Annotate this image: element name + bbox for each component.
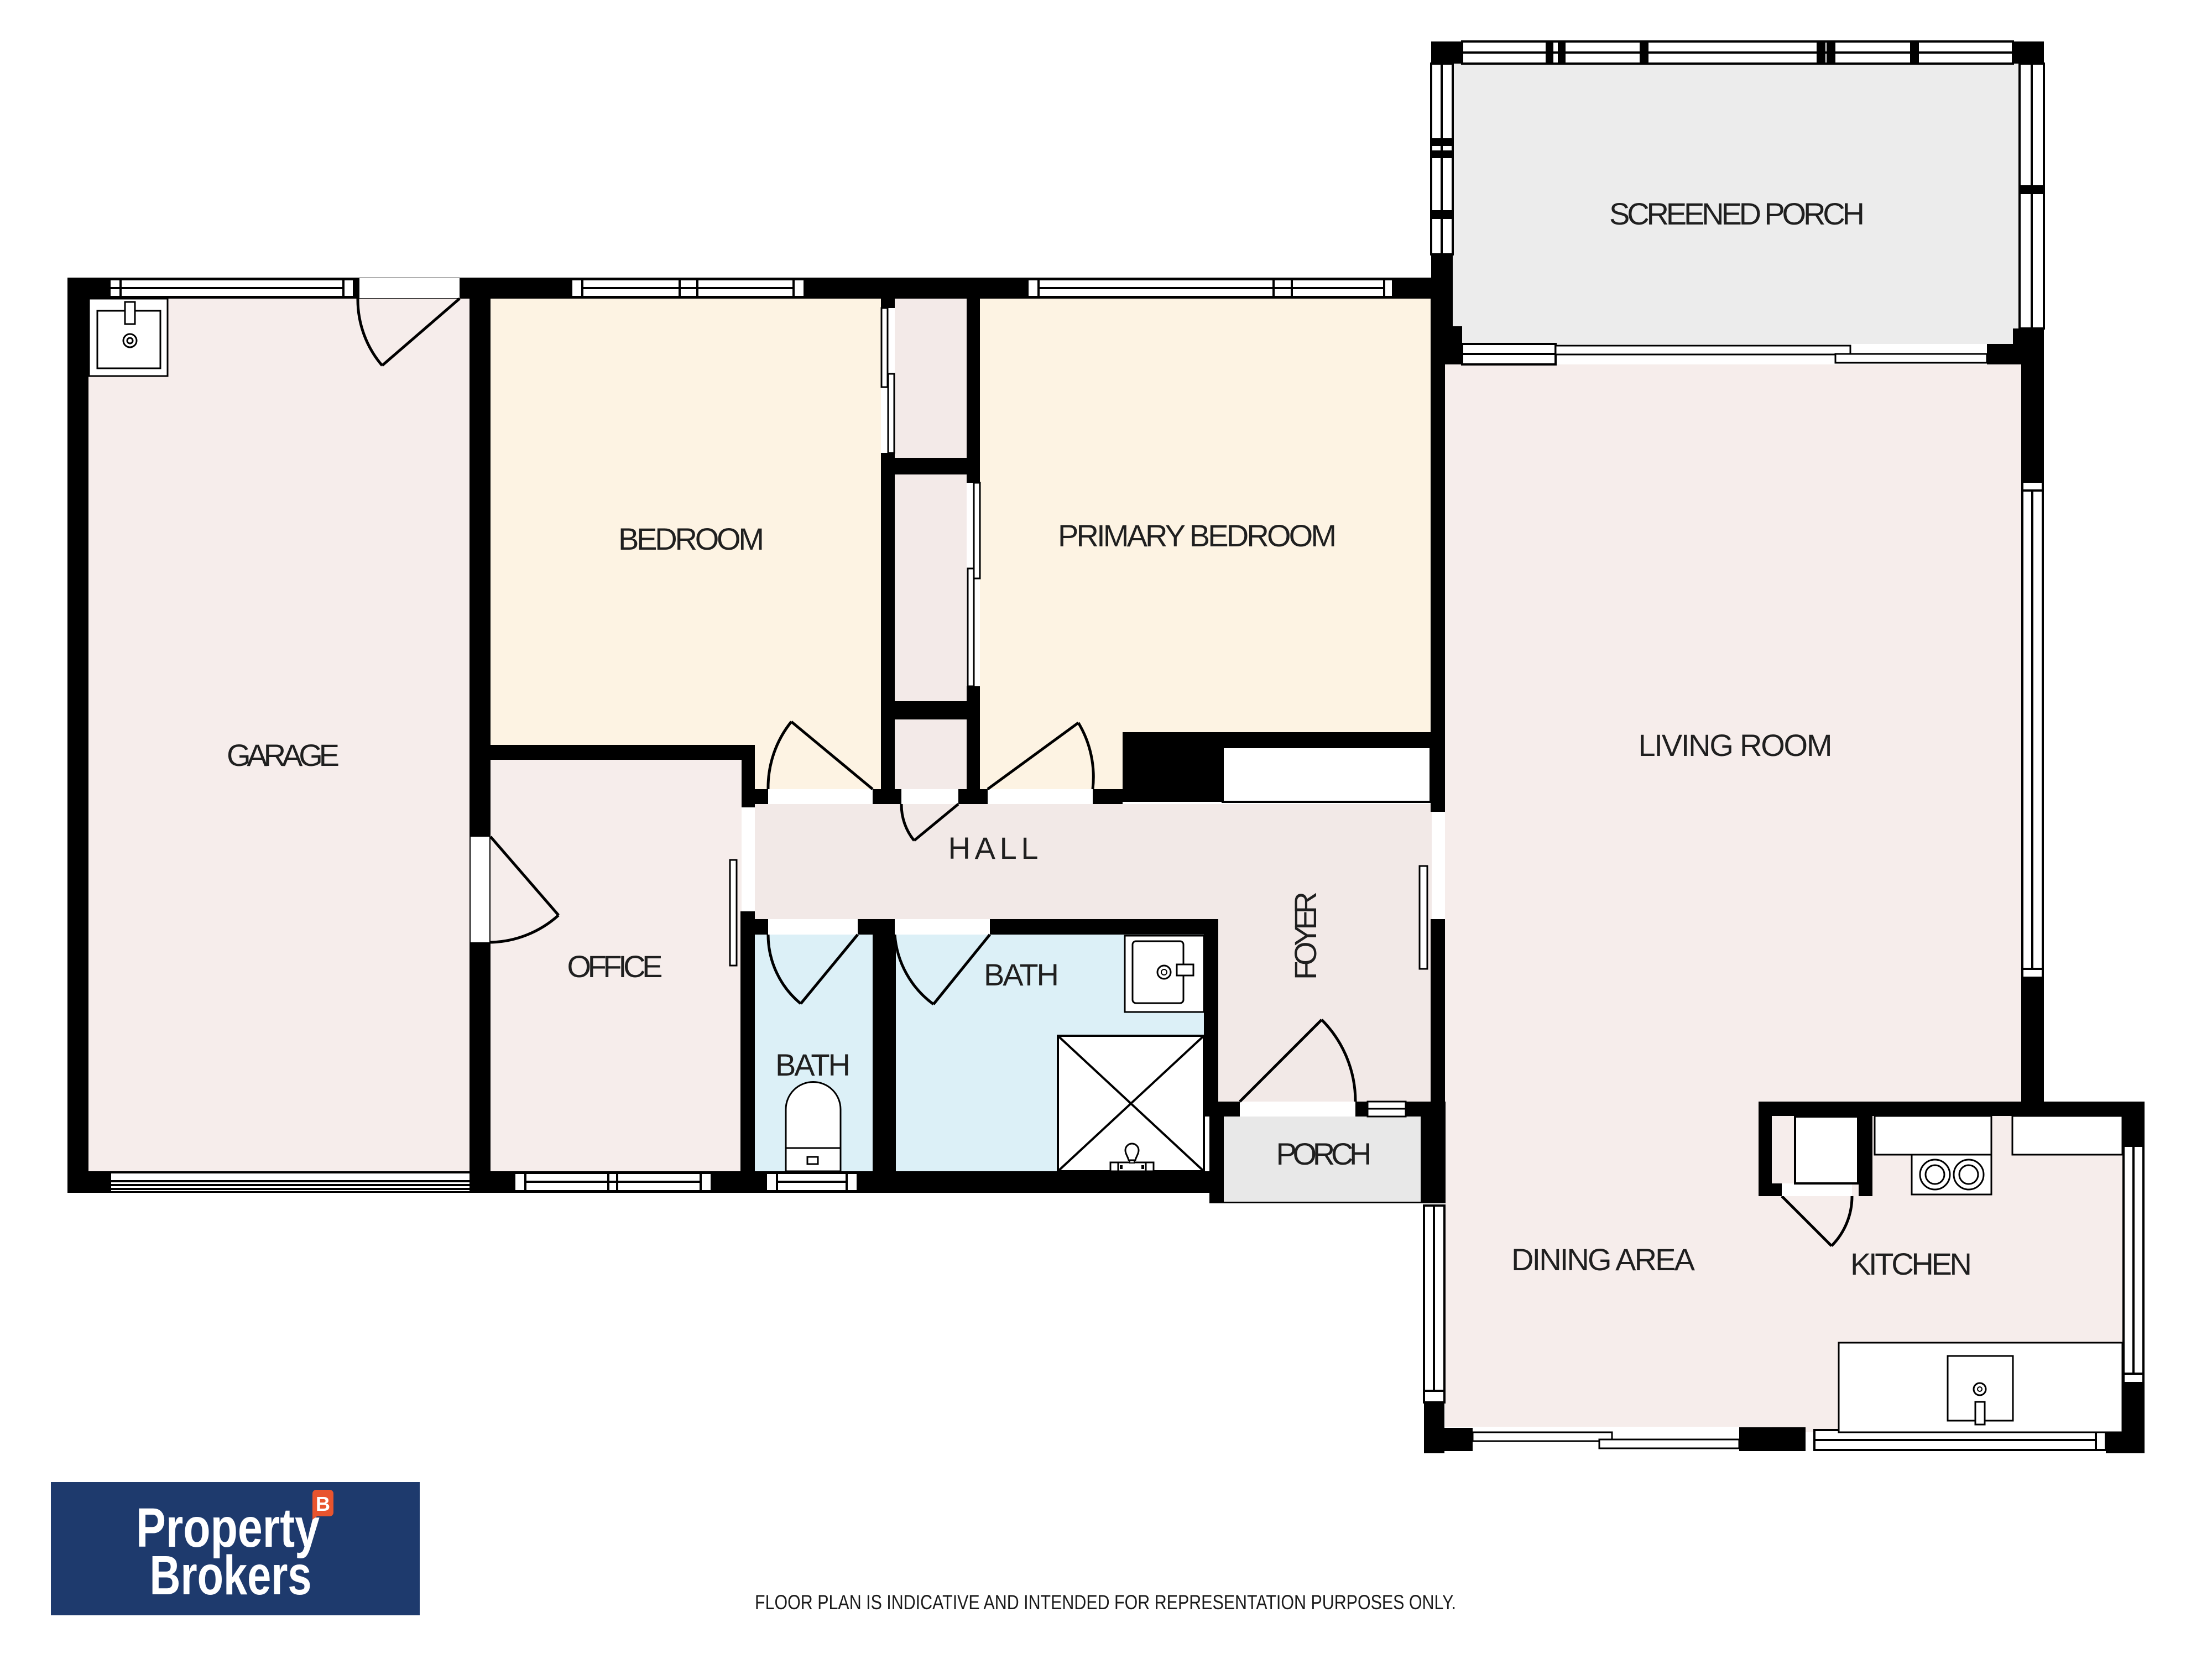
svg-text:SCREENED PORCH: SCREENED PORCH [1609, 196, 1865, 231]
svg-text:BATH: BATH [775, 1047, 851, 1082]
svg-text:PORCH: PORCH [1276, 1136, 1372, 1171]
svg-text:KITCHEN: KITCHEN [1850, 1246, 1972, 1281]
svg-text:DINING AREA: DINING AREA [1511, 1242, 1695, 1277]
svg-text:OFFICE: OFFICE [567, 949, 663, 984]
svg-text:FOYER: FOYER [1288, 891, 1323, 980]
svg-text:PRIMARY BEDROOM: PRIMARY BEDROOM [1058, 518, 1337, 553]
svg-text:LIVING ROOM: LIVING ROOM [1639, 728, 1833, 763]
svg-text:FLOOR PLAN IS INDICATIVE AND I: FLOOR PLAN IS INDICATIVE AND INTENDED FO… [755, 1591, 1456, 1614]
svg-text:HALL: HALL [948, 831, 1039, 865]
svg-text:B: B [316, 1493, 330, 1515]
svg-text:Brokers: Brokers [150, 1545, 312, 1606]
svg-text:GARAGE: GARAGE [227, 738, 340, 773]
svg-text:BEDROOM: BEDROOM [618, 521, 764, 556]
svg-text:BATH: BATH [984, 957, 1059, 992]
